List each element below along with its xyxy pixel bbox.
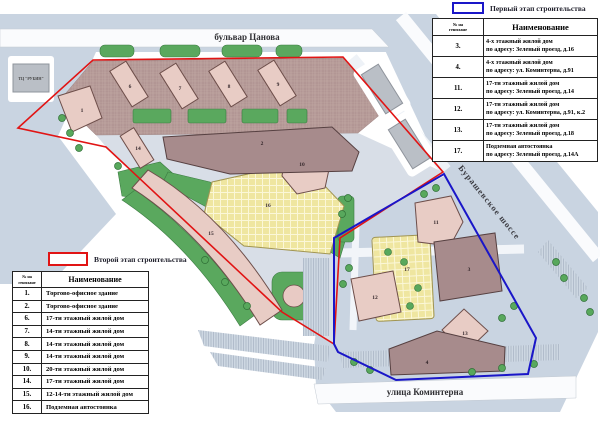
second-stage-table: № на генплане Наименование 1. Торгово-оф…: [12, 271, 149, 414]
svg-text:8: 8: [228, 84, 231, 90]
svg-text:6: 6: [129, 84, 132, 90]
svg-text:1: 1: [81, 108, 84, 114]
svg-text:16: 16: [265, 203, 271, 209]
table-row: 1. Торгово-офисное здание: [13, 288, 149, 301]
col-number-header: № на генплане: [13, 272, 42, 288]
playground: [283, 285, 305, 307]
svg-text:12: 12: [372, 295, 378, 301]
col-name-header: Наименование: [42, 272, 149, 288]
table-row: 14. 17-ти этажный жилой дом: [13, 376, 149, 389]
svg-text:17: 17: [404, 267, 410, 273]
table-row: 10. 20-ти этажный жилой дом: [13, 363, 149, 376]
table-row: 12. 17-ти этажный жилой домпо адресу: ул…: [433, 99, 598, 120]
table-row: 8. 14-ти этажный жилой дом: [13, 338, 149, 351]
svg-text:7: 7: [179, 86, 182, 92]
second-stage-legend-label: Второй этап строительства: [88, 255, 187, 264]
table-row: 17. Подземная автостоянкапо адресу: Зеле…: [433, 141, 598, 162]
second-stage-legend: Второй этап строительства: [48, 252, 187, 266]
first-stage-legend-label: Первый этап строительства: [484, 4, 586, 13]
svg-text:2: 2: [261, 141, 264, 147]
svg-text:4: 4: [426, 360, 429, 366]
first-stage-swatch: [452, 2, 484, 14]
col-name-header: Наименование: [484, 19, 598, 36]
table-row: 16. Подземная автостоянка: [13, 401, 149, 414]
table-row: 15. 12-14-ти этажный жилой дом: [13, 388, 149, 401]
table-row: 9. 14-ти этажный жилой дом: [13, 350, 149, 363]
shopping-center-label: ТЦ "РУБИН": [18, 76, 43, 81]
table-row: 4. 4-х этажный жилой домпо адресу: ул. К…: [433, 57, 598, 78]
svg-text:10: 10: [299, 162, 305, 168]
svg-text:11: 11: [433, 220, 438, 226]
road-tsanova: [0, 29, 389, 47]
table-row: 11. 17-ти этажный жилой домпо адресу: Зе…: [433, 78, 598, 99]
svg-text:9: 9: [277, 82, 280, 88]
first-stage-table: № на генплане Наименование 3. 4-х этажны…: [432, 18, 598, 162]
first-stage-legend: Первый этап строительства: [452, 2, 586, 14]
table-row: 6. 17-ти этажный жилой дом: [13, 313, 149, 326]
svg-text:3: 3: [468, 267, 471, 273]
col-number-header: № на генплане: [433, 19, 484, 36]
table-row: 3. 4-х этажный жилой домпо адресу: Зелен…: [433, 36, 598, 57]
street-label-tsanova: бульвар Цанова: [214, 32, 280, 42]
site-plan-page: бульвар Цанова улица Коминтерна Бурашевс…: [0, 0, 600, 422]
table-row: 13. 17-ти этажный жилой домпо адресу: Зе…: [433, 120, 598, 141]
svg-text:15: 15: [208, 231, 214, 237]
svg-text:14: 14: [135, 146, 141, 152]
svg-text:13: 13: [462, 331, 468, 337]
street-label-kominterna: улица Коминтерна: [387, 387, 464, 397]
second-stage-swatch: [48, 252, 88, 266]
table-row: 2. Торгово-офисное здание: [13, 300, 149, 313]
table-header-row: № на генплане Наименование: [433, 19, 598, 36]
table-row: 7. 14-ти этажный жилой дом: [13, 325, 149, 338]
table-header-row: № на генплане Наименование: [13, 272, 149, 288]
